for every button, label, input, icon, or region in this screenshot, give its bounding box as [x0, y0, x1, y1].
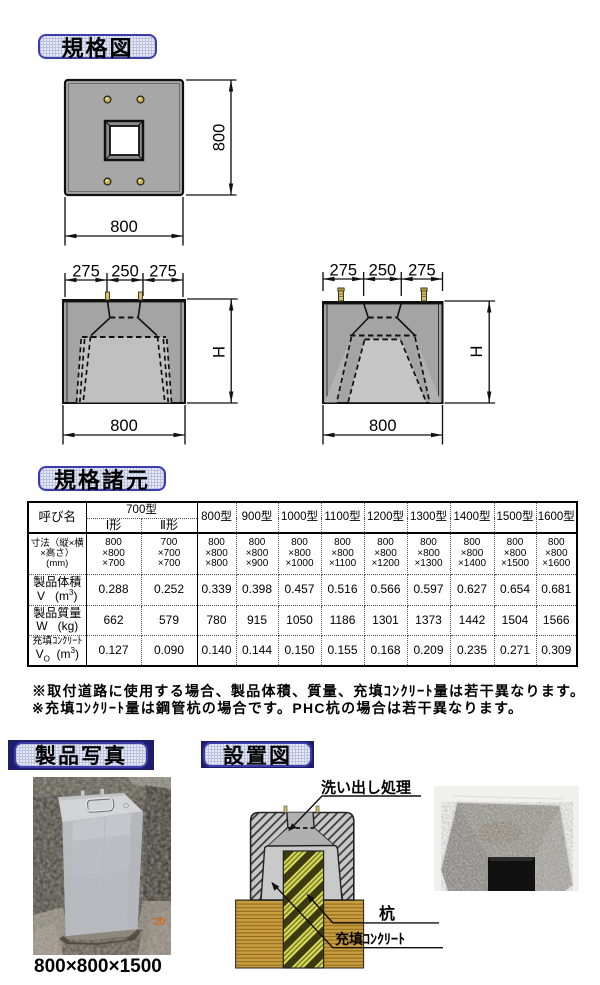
- svg-text:洗い出し処理: 洗い出し処理: [321, 779, 411, 797]
- svg-text:800: 800: [110, 218, 138, 236]
- svg-text:800: 800: [369, 417, 397, 435]
- svg-text:20: 20: [153, 916, 165, 928]
- svg-text:275: 275: [330, 262, 358, 280]
- svg-text:H: H: [210, 346, 228, 358]
- svg-text:250: 250: [369, 262, 397, 280]
- svg-text:H: H: [468, 346, 486, 358]
- svg-text:杭: 杭: [379, 904, 395, 923]
- svg-text:275: 275: [149, 263, 177, 281]
- svg-text:充填ｺﾝｸﾘｰﾄ: 充填ｺﾝｸﾘｰﾄ: [335, 931, 405, 947]
- svg-text:800: 800: [110, 417, 138, 435]
- svg-text:800: 800: [211, 124, 229, 152]
- svg-text:275: 275: [72, 263, 100, 281]
- svg-text:275: 275: [408, 262, 436, 280]
- svg-text:250: 250: [111, 263, 139, 281]
